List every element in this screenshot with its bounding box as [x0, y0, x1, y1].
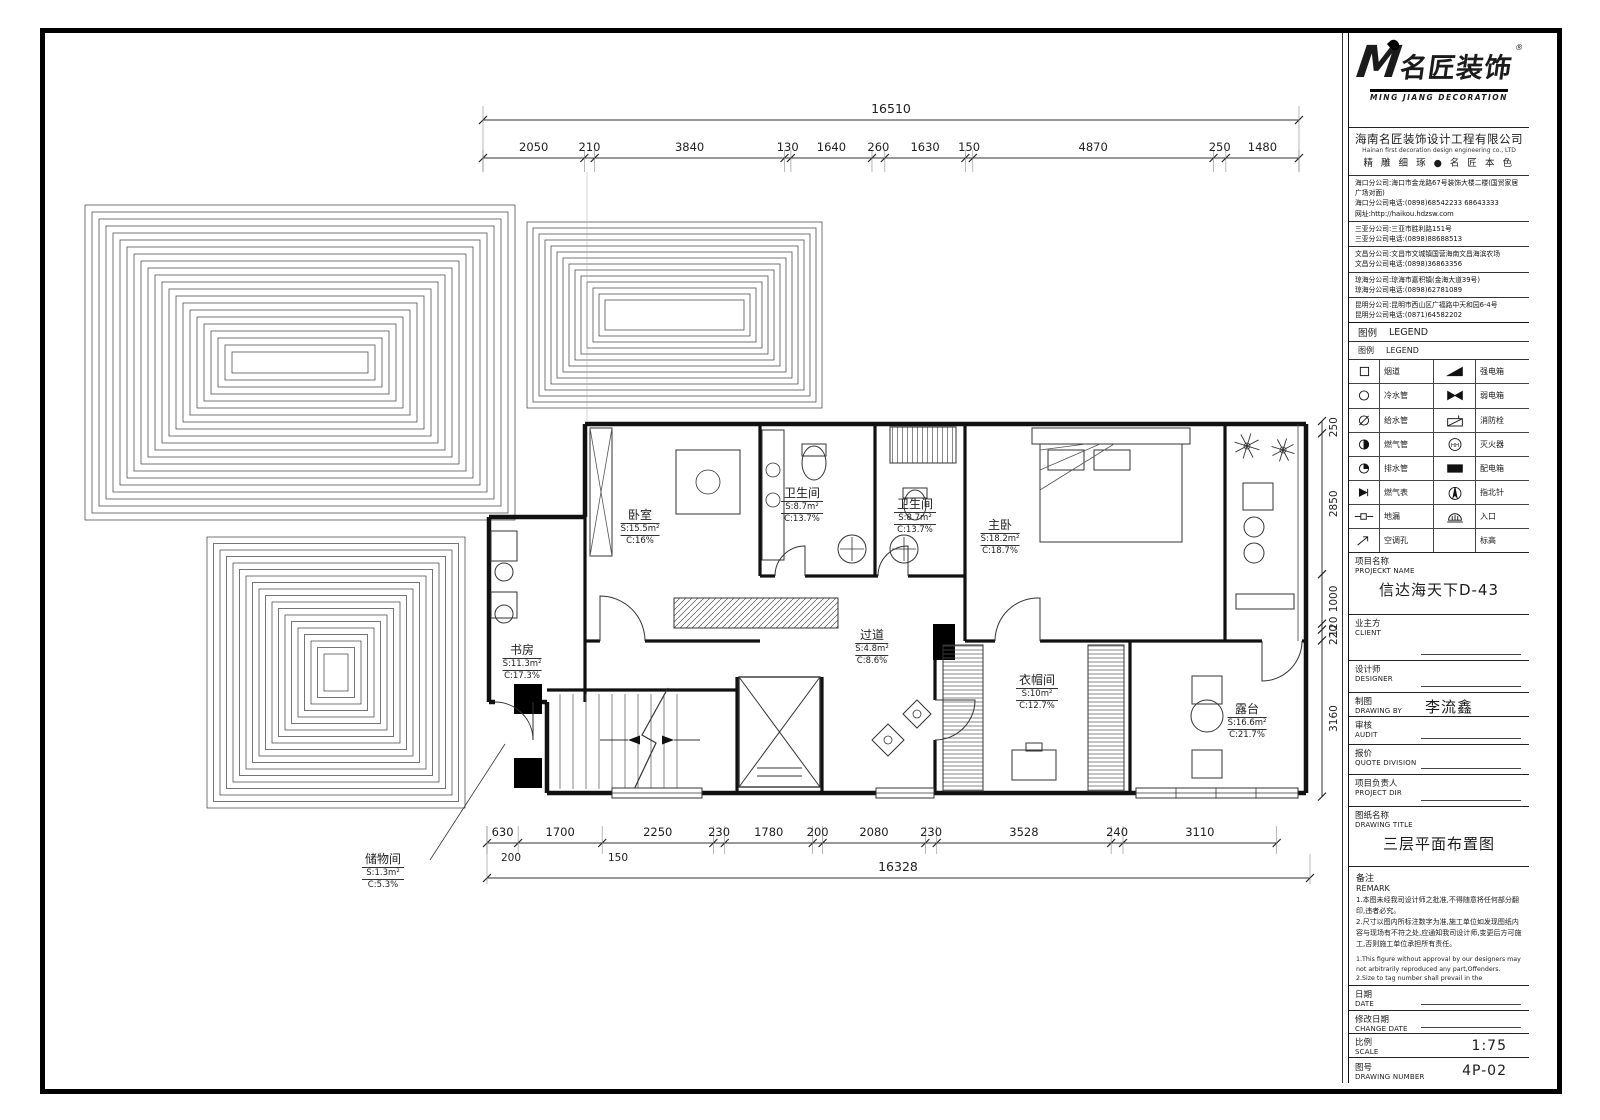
- field-date: 日期 DATE: [1349, 985, 1529, 1010]
- legend-table: 烟道强电箱冷水管弱电箱给水管消防栓燃气管HH灭火器排水管配电箱燃气表指北针地漏入…: [1349, 359, 1529, 552]
- legend-row: 冷水管弱电箱: [1349, 383, 1529, 407]
- branch-row: 海口分公司:海口市金龙路67号装饰大楼二楼(国贸家居广场对面)海口分公司电话:(…: [1349, 175, 1529, 221]
- entrance-icon: [1444, 509, 1466, 524]
- legend-row: 燃气管HH灭火器: [1349, 432, 1529, 456]
- branch-info-line: 文昌分公司:文昌市文城镇国营海南文昌海滨农场: [1355, 249, 1523, 259]
- extinguisher-icon: HH: [1444, 437, 1466, 452]
- legend-label: 灭火器: [1475, 433, 1529, 456]
- field-audit: 审核 AUDIT: [1349, 716, 1529, 744]
- legend-label: 燃气表: [1379, 481, 1433, 504]
- branch-info-line: 网址:http://haikou.hdzsw.com: [1355, 209, 1523, 219]
- field-drawing-title: 图纸名称 DRAWING TITLE 三层平面布置图: [1349, 806, 1529, 866]
- legend-label: 标高: [1475, 529, 1529, 552]
- field-change-date: 修改日期 CHANGE DATE: [1349, 1010, 1529, 1033]
- field-client: 业主方 CLIENT: [1349, 614, 1529, 660]
- ac-hole-icon: [1353, 533, 1375, 548]
- branch-contacts: 海口分公司:海口市金龙路67号装饰大楼二楼(国贸家居广场对面)海口分公司电话:(…: [1349, 175, 1529, 322]
- power-box-icon: [1444, 364, 1466, 379]
- legend-row: 烟道强电箱: [1349, 360, 1529, 383]
- legend-label: 弱电箱: [1475, 384, 1529, 407]
- legend-label: 消防栓: [1475, 409, 1529, 432]
- room-label-study: 书房 S:11.3m² C:17.3%: [503, 643, 542, 681]
- sheet-border: [40, 28, 1562, 1094]
- legend-label: 排水管: [1379, 457, 1433, 480]
- floor-drain-icon: [1353, 509, 1375, 524]
- drawing-title-value: 三层平面布置图: [1355, 833, 1523, 854]
- branch-info-line: 昆明分公司:昆明市西山区广福路中天和园6-4号: [1355, 300, 1523, 310]
- title-block-divider: [1342, 33, 1343, 1083]
- drain-pipe-icon: [1353, 461, 1375, 476]
- scale-value: 1:75: [1472, 1038, 1523, 1054]
- legend-label: 指北针: [1475, 481, 1529, 504]
- legend-label: 强电箱: [1475, 360, 1529, 383]
- legend-label: 燃气管: [1379, 433, 1433, 456]
- drawing-number-value: 4P-02: [1462, 1063, 1523, 1079]
- room-label-corridor: 过道 S:4.8m² C:8.6%: [855, 628, 888, 666]
- legend-label: 入口: [1475, 505, 1529, 528]
- remark-notes-cn: 1.本图未经我司设计师之批准,不得随意将任何部分翻印,违者必究。2.尺寸以图内所…: [1356, 895, 1522, 949]
- company-name-en: Hainan first decoration design engineeri…: [1349, 147, 1529, 154]
- cold-water-icon: [1353, 388, 1375, 403]
- branch-row: 文昌分公司:文昌市文城镇国营海南文昌海滨农场文昌分公司电话:(0898)3686…: [1349, 246, 1529, 271]
- branch-info-line: 三亚分公司电话:(0898)88688513: [1355, 234, 1523, 244]
- branch-info-line: 三亚分公司:三亚市胜利路151号: [1355, 224, 1523, 234]
- branch-info-line: 海口分公司:海口市金龙路67号装饰大楼二楼(国贸家居广场对面): [1355, 178, 1523, 198]
- legend-row: 燃气表指北针: [1349, 480, 1529, 504]
- registered-mark: ®: [1515, 43, 1524, 52]
- legend-row: 给水管消防栓: [1349, 408, 1529, 432]
- supply-water-icon: [1353, 413, 1375, 428]
- legend-row: 空调孔标高: [1349, 528, 1529, 552]
- remark-notes-en: 1.This figure without approval by our de…: [1356, 955, 1522, 985]
- legend-row: 地漏入口: [1349, 504, 1529, 528]
- legend-subheader: 图例 LEGEND: [1349, 341, 1529, 359]
- branch-info-line: 琼海分公司:琼海市嘉积镇(金海大道39号): [1355, 275, 1523, 285]
- legend-label: 烟道: [1379, 360, 1433, 383]
- designer-signature-line: [1421, 686, 1521, 687]
- room-label-bedroom: 卧室 S:15.5m² C:16%: [621, 508, 660, 546]
- branch-info-line: 昆明分公司电话:(0871)64582202: [1355, 310, 1523, 320]
- field-project-dir: 项目负责人 PROJECT DIR: [1349, 774, 1529, 806]
- legend-label: 空调孔: [1379, 529, 1433, 552]
- legend-label: 地漏: [1379, 505, 1433, 528]
- legend-label: 给水管: [1379, 409, 1433, 432]
- company-name: 海南名匠装饰设计工程有限公司: [1349, 131, 1529, 147]
- field-drawing-number: 图号 DRAWING NUMBER 4P-02: [1349, 1057, 1529, 1083]
- legend-row: 排水管配电箱: [1349, 456, 1529, 480]
- company-block: 海南名匠装饰设计工程有限公司 Hainan first decoration d…: [1349, 127, 1529, 175]
- dist-box-icon: [1444, 461, 1466, 476]
- branch-row: 琼海分公司:琼海市嘉积镇(金海大道39号)琼海分公司电话:(0898)62781…: [1349, 272, 1529, 297]
- company-logo: M名匠装饰® MING JIANG DECORATION: [1349, 33, 1529, 127]
- north-arrow-icon: [1444, 485, 1466, 500]
- branch-info-line: 琼海分公司电话:(0898)62781089: [1355, 285, 1523, 295]
- weak-box-icon: [1444, 388, 1466, 403]
- drawing-by-value: 李流鑫: [1425, 696, 1473, 717]
- room-label-terrace: 露台 S:16.6m² C:21.7%: [1228, 702, 1267, 740]
- room-label-bath-1: 卫生间 S:8.7m² C:13.7%: [781, 486, 823, 524]
- svg-text:HH: HH: [1450, 442, 1458, 448]
- gas-pipe-icon: [1353, 437, 1375, 452]
- gas-meter-icon: [1353, 485, 1375, 500]
- field-designer: 设计师 DESIGNER: [1349, 660, 1529, 692]
- room-label-cloakroom: 衣帽间 S:10m² C:12.7%: [1016, 673, 1058, 711]
- field-scale: 比例 SCALE 1:75: [1349, 1033, 1529, 1057]
- field-project-name: 项目名称 PROJECKT NAME 信达海天下D-43: [1349, 552, 1529, 614]
- project-name-value: 信达海天下D-43: [1355, 579, 1523, 600]
- remark-section: 备注 REMARK 1.本图未经我司设计师之批准,不得随意将任何部分翻印,违者必…: [1349, 866, 1529, 985]
- quote-signature-line: [1421, 768, 1521, 769]
- project-dir-signature-line: [1421, 800, 1521, 801]
- hydrant-icon: [1444, 413, 1466, 428]
- elevation-icon: [1444, 533, 1466, 548]
- room-label-bath-2: 卫生间 S:8.7m² C:13.7%: [894, 497, 936, 535]
- drawing-sheet: 2050210384013016402601630150487025014801…: [0, 0, 1600, 1120]
- legend-label: 配电箱: [1475, 457, 1529, 480]
- change-date-line: [1421, 1027, 1521, 1028]
- logo-subtitle: MING JIANG DECORATION: [1370, 89, 1508, 102]
- branch-info-line: 海口分公司电话:(0898)68542233 68643333: [1355, 198, 1523, 208]
- client-signature-line: [1421, 654, 1521, 655]
- field-drawing-by: 制图 DRAWING BY 李流鑫: [1349, 692, 1529, 716]
- field-quote: 报价 QUOTE DIVISION: [1349, 744, 1529, 774]
- branch-row: 昆明分公司:昆明市西山区广福路中天和园6-4号昆明分公司电话:(0871)645…: [1349, 297, 1529, 322]
- logo-brand-name: 名匠装饰: [1398, 53, 1514, 84]
- room-label-master-bedroom: 主卧 S:18.2m² C:18.7%: [981, 518, 1020, 556]
- title-block: M名匠装饰® MING JIANG DECORATION 海南名匠装饰设计工程有…: [1348, 33, 1529, 1083]
- room-label-storage: 储物间 S:1.3m² C:5.3%: [362, 852, 404, 890]
- audit-signature-line: [1421, 738, 1521, 739]
- branch-row: 三亚分公司:三亚市胜利路151号三亚分公司电话:(0898)88688513: [1349, 221, 1529, 246]
- branch-info-line: 文昌分公司电话:(0898)36863356: [1355, 259, 1523, 269]
- flue-icon: [1353, 364, 1375, 379]
- date-line: [1421, 1004, 1521, 1005]
- company-slogan: 精 雕 细 琢 ● 名 匠 本 色: [1349, 155, 1529, 169]
- legend-label: 冷水管: [1379, 384, 1433, 407]
- legend-header: 图例 LEGEND: [1349, 322, 1529, 341]
